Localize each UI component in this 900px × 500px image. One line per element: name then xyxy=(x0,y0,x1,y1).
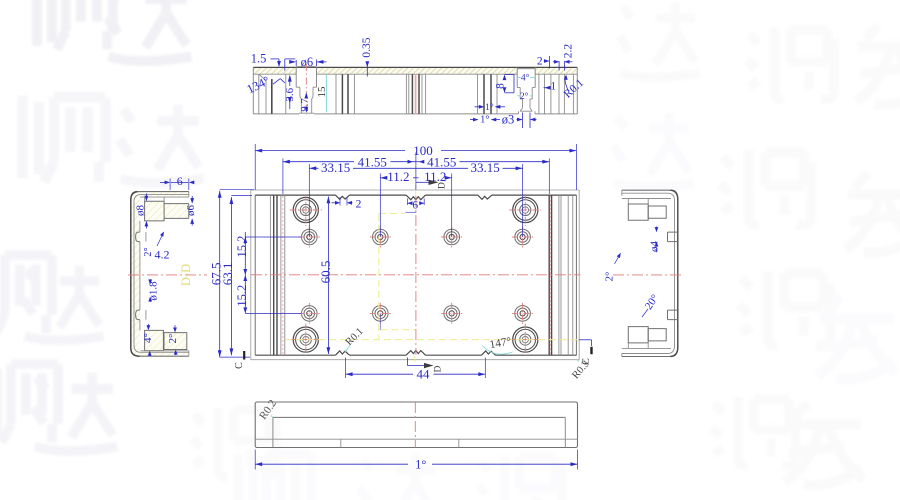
svg-text:6: 6 xyxy=(412,199,418,211)
svg-text:2°: 2° xyxy=(143,247,154,256)
svg-text:11.2: 11.2 xyxy=(387,169,409,184)
svg-text:44: 44 xyxy=(417,367,431,382)
svg-text:ø4: ø4 xyxy=(649,241,661,253)
svg-text:4.2: 4.2 xyxy=(155,248,170,262)
svg-text:41.55: 41.55 xyxy=(358,154,387,169)
svg-text:D: D xyxy=(438,182,448,189)
svg-text:ø6: ø6 xyxy=(185,205,197,217)
svg-text:ø3: ø3 xyxy=(502,113,515,127)
svg-text:60.5: 60.5 xyxy=(318,261,333,284)
svg-text:2°: 2° xyxy=(167,334,179,344)
svg-text:1.5: 1.5 xyxy=(251,52,267,66)
svg-text:2°: 2° xyxy=(520,91,529,102)
svg-text:6: 6 xyxy=(177,174,183,188)
svg-text:D-D: D-D xyxy=(179,264,193,286)
svg-text:ø6: ø6 xyxy=(301,55,314,69)
svg-text:1°: 1° xyxy=(485,102,494,113)
svg-text:0.35: 0.35 xyxy=(361,37,373,57)
svg-text:63.1: 63.1 xyxy=(220,263,235,286)
svg-text:4°: 4° xyxy=(142,333,154,343)
svg-text:1°: 1° xyxy=(480,115,489,126)
svg-text:2: 2 xyxy=(537,56,543,68)
svg-text:4°: 4° xyxy=(521,73,530,84)
svg-text:D: D xyxy=(434,365,444,372)
svg-text:15.2: 15.2 xyxy=(235,285,249,307)
svg-text:1: 1 xyxy=(550,81,556,93)
svg-text:ø1.8: ø1.8 xyxy=(148,281,160,301)
svg-text:ø8: ø8 xyxy=(135,205,147,217)
svg-text:2: 2 xyxy=(356,198,362,210)
svg-text:2.2: 2.2 xyxy=(563,44,575,59)
svg-text:1°: 1° xyxy=(415,458,426,472)
svg-text:15: 15 xyxy=(316,86,328,98)
svg-text:2°: 2° xyxy=(604,272,616,282)
svg-text:33.15: 33.15 xyxy=(470,160,499,175)
svg-text:15.2: 15.2 xyxy=(235,236,249,258)
svg-text:C: C xyxy=(234,362,245,369)
svg-text:41.55: 41.55 xyxy=(427,154,456,169)
svg-text:33.15: 33.15 xyxy=(321,160,350,175)
